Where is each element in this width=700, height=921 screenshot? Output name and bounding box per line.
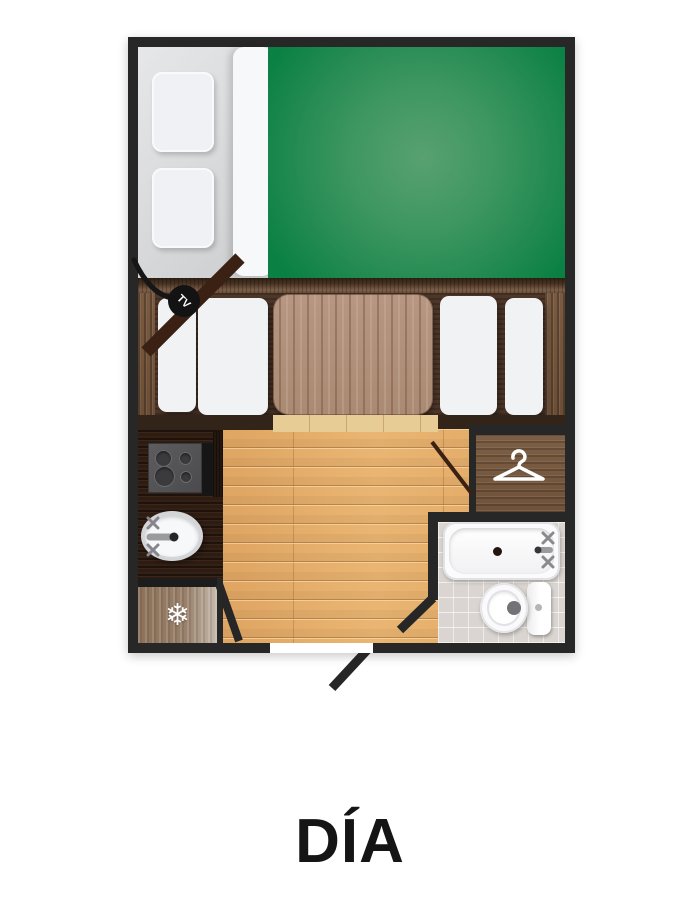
- bench-side-panel-left: [138, 293, 155, 415]
- seat-cushion: [198, 298, 268, 415]
- bench-front-left: [138, 415, 273, 430]
- stove-burner: [155, 450, 172, 467]
- kitchen-sink: [141, 511, 203, 561]
- fridge: ❄: [138, 587, 217, 643]
- seat-cushion: [505, 298, 543, 415]
- floorplan: ❄: [128, 37, 575, 653]
- stove-burner: [180, 471, 192, 483]
- bench-side-panel-right: [545, 293, 565, 415]
- bench-backrest-shelf: [138, 278, 565, 293]
- seat-cushion: [440, 296, 497, 415]
- stove-burner: [154, 466, 175, 487]
- table-step: [273, 415, 438, 432]
- bathtub-drain: [493, 547, 502, 556]
- counter-end-cap: [138, 578, 223, 587]
- bed-sheet-roll: [233, 47, 273, 276]
- stove-cooktop: [148, 443, 202, 493]
- wardrobe: [476, 435, 565, 513]
- toilet: [480, 583, 528, 633]
- counter-side-panel: [213, 432, 223, 497]
- page-title: DÍA: [0, 806, 700, 877]
- pillow: [152, 168, 214, 248]
- snowflake-icon: ❄: [138, 587, 217, 643]
- floorplan-page: ❄: [0, 0, 700, 921]
- toilet-flush-button: [535, 604, 542, 611]
- wardrobe-wall-side: [469, 425, 476, 513]
- kitchen-partition-wall: [217, 578, 223, 643]
- wardrobe-wall-top: [469, 425, 565, 435]
- stove-handle: [202, 443, 213, 495]
- bed-green-duvet: [268, 47, 565, 278]
- bathtub: [443, 522, 560, 580]
- floorplan-interior: ❄: [138, 47, 565, 643]
- seat-cushion: [158, 298, 196, 412]
- bathroom-wall-top: [428, 512, 565, 522]
- stove-burner: [179, 452, 192, 465]
- toilet-seat-hinge: [507, 601, 521, 615]
- toilet-tank: [527, 582, 551, 635]
- dining-table: [273, 294, 433, 415]
- pillow: [152, 72, 214, 152]
- bathroom-wall-left: [428, 512, 438, 600]
- entrance-opening: [270, 643, 373, 653]
